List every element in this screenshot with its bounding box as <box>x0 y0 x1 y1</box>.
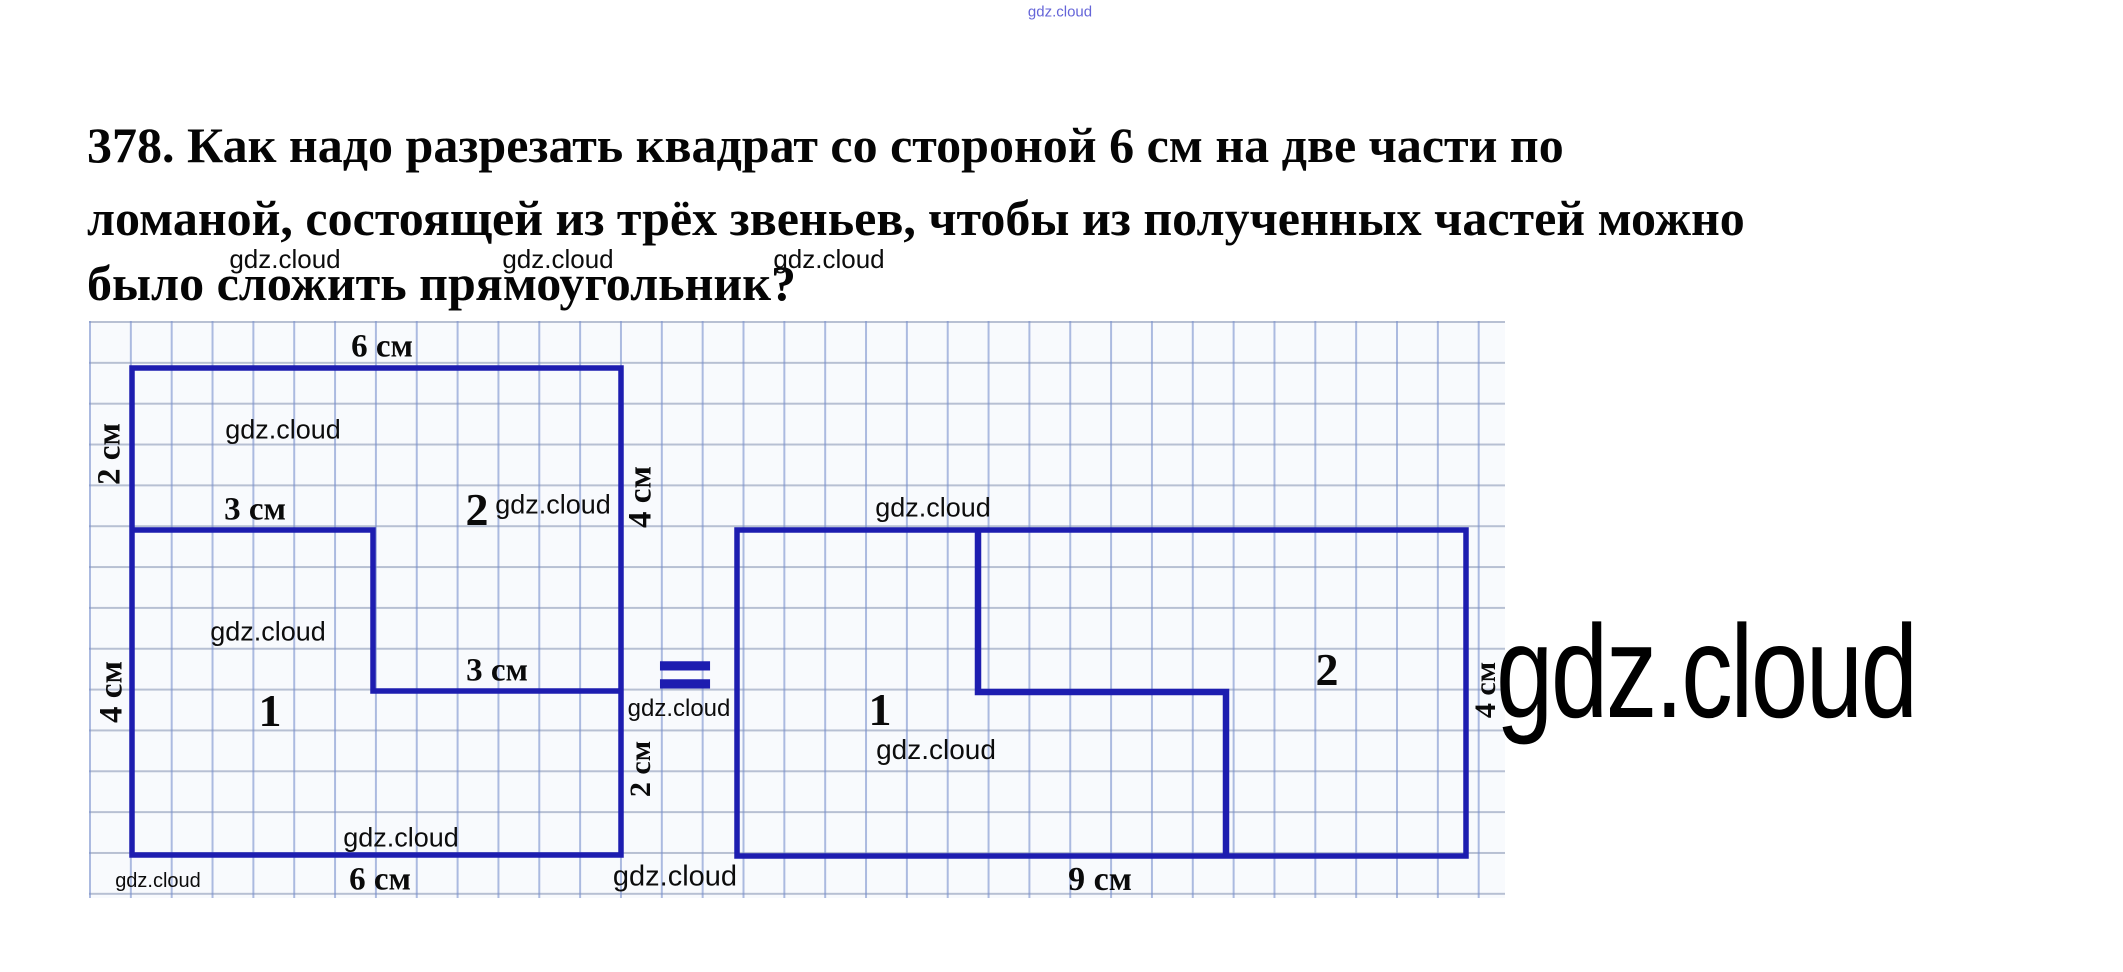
square-right-top-dimension: 4 см <box>625 466 658 528</box>
square-piece2-label: 2 <box>466 487 489 533</box>
watermark-rectangle-piece1: gdz.cloud <box>876 736 996 764</box>
watermark-rectangle-top: gdz.cloud <box>875 495 991 522</box>
square-cut-upper-dimension: 3 см <box>224 494 286 527</box>
watermark-square-bottom: gdz.cloud <box>343 825 459 852</box>
rectangle-cut-line <box>978 530 1226 856</box>
square-cut-line <box>132 530 621 691</box>
textbook-page: gdz.cloud 378. Как надо разрезать квадра… <box>0 0 2123 972</box>
watermark-square-piece2: gdz.cloud <box>495 492 611 519</box>
square-top-dimension: 6 см <box>351 331 413 364</box>
square-outline <box>132 368 621 855</box>
square-left-top-dimension: 2 см <box>94 423 127 485</box>
square-left-bottom-dimension: 4 см <box>96 661 129 723</box>
watermark-bottom-left: gdz.cloud <box>115 871 201 891</box>
square-piece1-label: 1 <box>259 688 282 734</box>
square-bottom-dimension: 6 см <box>349 864 411 897</box>
watermark-square-top: gdz.cloud <box>225 417 341 444</box>
watermark-below-equals: gdz.cloud <box>628 697 731 721</box>
rectangle-piece2-label: 2 <box>1316 647 1339 693</box>
square-right-bottom-dimension: 2 см <box>626 741 656 797</box>
rectangle-bottom-dimension: 9 см <box>1068 863 1132 897</box>
figure-drawing <box>0 0 2123 972</box>
watermark-square-piece1: gdz.cloud <box>210 619 326 646</box>
watermark-bottom-center: gdz.cloud <box>613 863 737 892</box>
square-cut-lower-dimension: 3 см <box>466 655 528 688</box>
watermark-large: gdz.cloud <box>1496 606 1916 738</box>
rectangle-piece1-label: 1 <box>869 687 892 733</box>
